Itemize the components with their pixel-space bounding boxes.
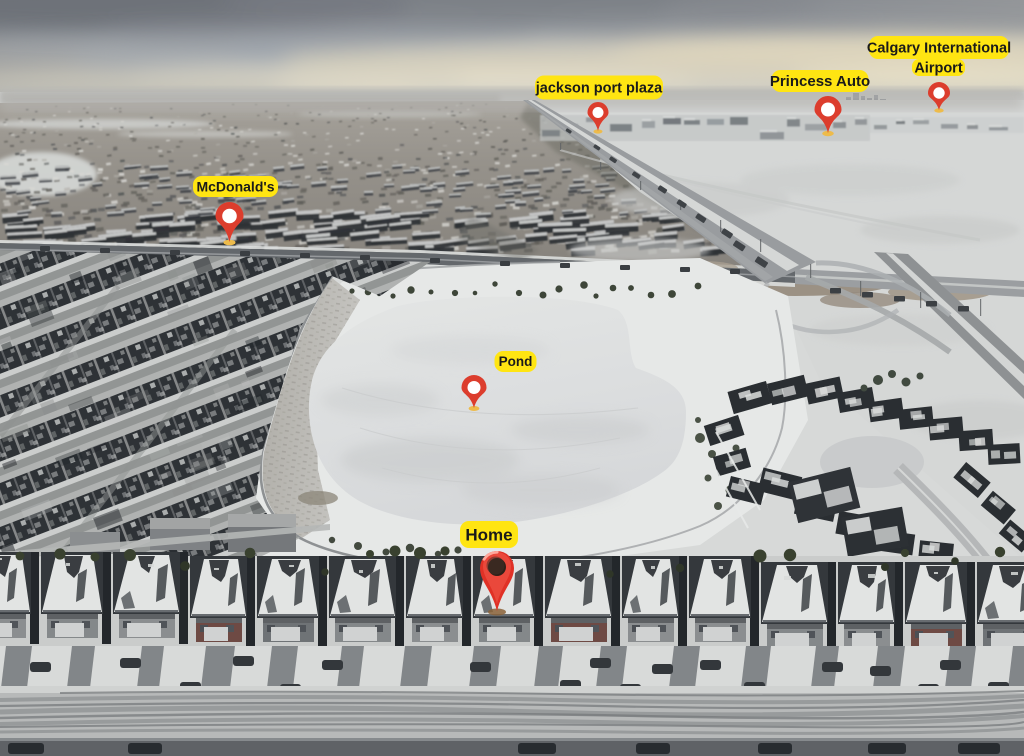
svg-text:Calgary International: Calgary International <box>867 41 1011 57</box>
svg-text:Home: Home <box>465 526 512 545</box>
svg-text:Princess Auto: Princess Auto <box>770 73 870 90</box>
svg-text:jackson port plaza: jackson port plaza <box>535 81 663 97</box>
svg-text:Pond: Pond <box>499 354 533 369</box>
svg-text:McDonald's: McDonald's <box>196 178 274 194</box>
svg-text:Airport: Airport <box>914 61 963 77</box>
